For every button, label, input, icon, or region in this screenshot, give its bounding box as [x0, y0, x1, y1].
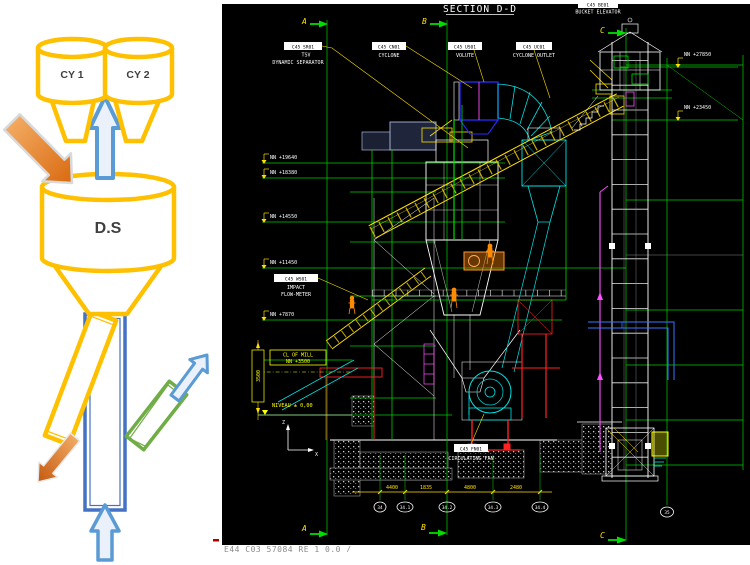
document-number-strip: E44 C03 57084 RE 1 0.0 /: [222, 545, 750, 565]
dimension-text: 1835: [420, 485, 432, 491]
marker-letter: A: [301, 17, 307, 26]
bubble-text: 34.2: [442, 505, 453, 511]
bubble-text: 35: [664, 510, 670, 516]
elevation-text: NN +19640: [270, 155, 297, 161]
page: D.S CY 1 CY 2: [0, 0, 750, 565]
elevation-text: NN +27850: [684, 52, 711, 58]
tag-code: C45 SR01: [292, 44, 314, 50]
red-tick: [213, 539, 219, 542]
marker-letter: C: [600, 531, 605, 540]
bubble-text: 34: [377, 505, 383, 511]
marker-letter: B: [421, 523, 426, 532]
tag-code: C45 FN01: [460, 446, 482, 452]
elevation-text: NN +18380: [270, 170, 297, 176]
section-title: SECTION D-D: [443, 4, 517, 15]
mill-cl-line2: NN +3500: [286, 359, 310, 365]
boot-chute: [652, 432, 668, 456]
axis-x-label: X: [315, 452, 318, 458]
tag-label: CIRCULATING FAN: [448, 456, 493, 462]
tag-code: C45 WS01: [285, 276, 307, 282]
cad-drawing: SECTION D-D C45 SR01 TSV DYNAMIC SEPARAT…: [222, 0, 750, 545]
tag-code: C45 UC01: [523, 44, 545, 50]
dimension-text: 2480: [510, 485, 522, 491]
tag-label: CYCLONE OUTLET: [513, 53, 555, 59]
cyclone1-label: CY 1: [60, 69, 83, 81]
tag-label: CYCLONE: [378, 53, 399, 59]
axis-z-label: Z: [282, 420, 285, 426]
branch-out-arrow: [171, 355, 207, 401]
tag-label: IMPACT: [287, 285, 305, 291]
dimension-text: 4400: [386, 485, 398, 491]
inlet-arrow: [91, 505, 119, 560]
mill-cl-line1: CL OF MILL: [283, 353, 313, 359]
drawing-title: SECTION D-D: [443, 4, 517, 15]
document-number: E44 C03 57084 RE 1 0.0 /: [222, 545, 750, 552]
bubble-text: 34.4: [535, 505, 546, 511]
marker-letter: A: [301, 524, 307, 533]
tag-code: C45 CN01: [378, 44, 400, 50]
marker-letter: B: [422, 17, 427, 26]
bubble-text: 34.3: [488, 505, 499, 511]
orange-drive-unit: [464, 252, 504, 270]
elevation-text: NN +11450: [270, 260, 297, 266]
tag-label: BUCKET ELEVATOR: [575, 10, 621, 16]
process-schematic: D.S CY 1 CY 2: [0, 0, 222, 565]
tag-label: DYNAMIC SEPARATOR: [272, 60, 324, 66]
cyclone2-label: CY 2: [126, 69, 149, 81]
tag-label: TSV: [301, 53, 310, 59]
tag-label: VOLUTE: [456, 53, 474, 59]
marker-letter: C: [600, 26, 605, 35]
vertical-dim-text: 3500: [256, 370, 262, 382]
elevation-text: NN +14550: [270, 214, 297, 220]
dimension-text: 4800: [464, 485, 476, 491]
dynamic-separator-vessel: D.S: [42, 174, 174, 314]
tag-label: FLOW-METER: [281, 292, 312, 298]
bubble-text: 34.1: [400, 505, 411, 511]
elevation-text: NN +23450: [684, 105, 711, 111]
tag-code: C45 US01: [454, 44, 476, 50]
elevation-text: NN +7870: [270, 312, 294, 318]
tag-code: C45 BE01: [587, 3, 609, 9]
level-text: NIVEAU ± 0,00: [272, 403, 313, 409]
separator-label: D.S: [95, 220, 122, 237]
